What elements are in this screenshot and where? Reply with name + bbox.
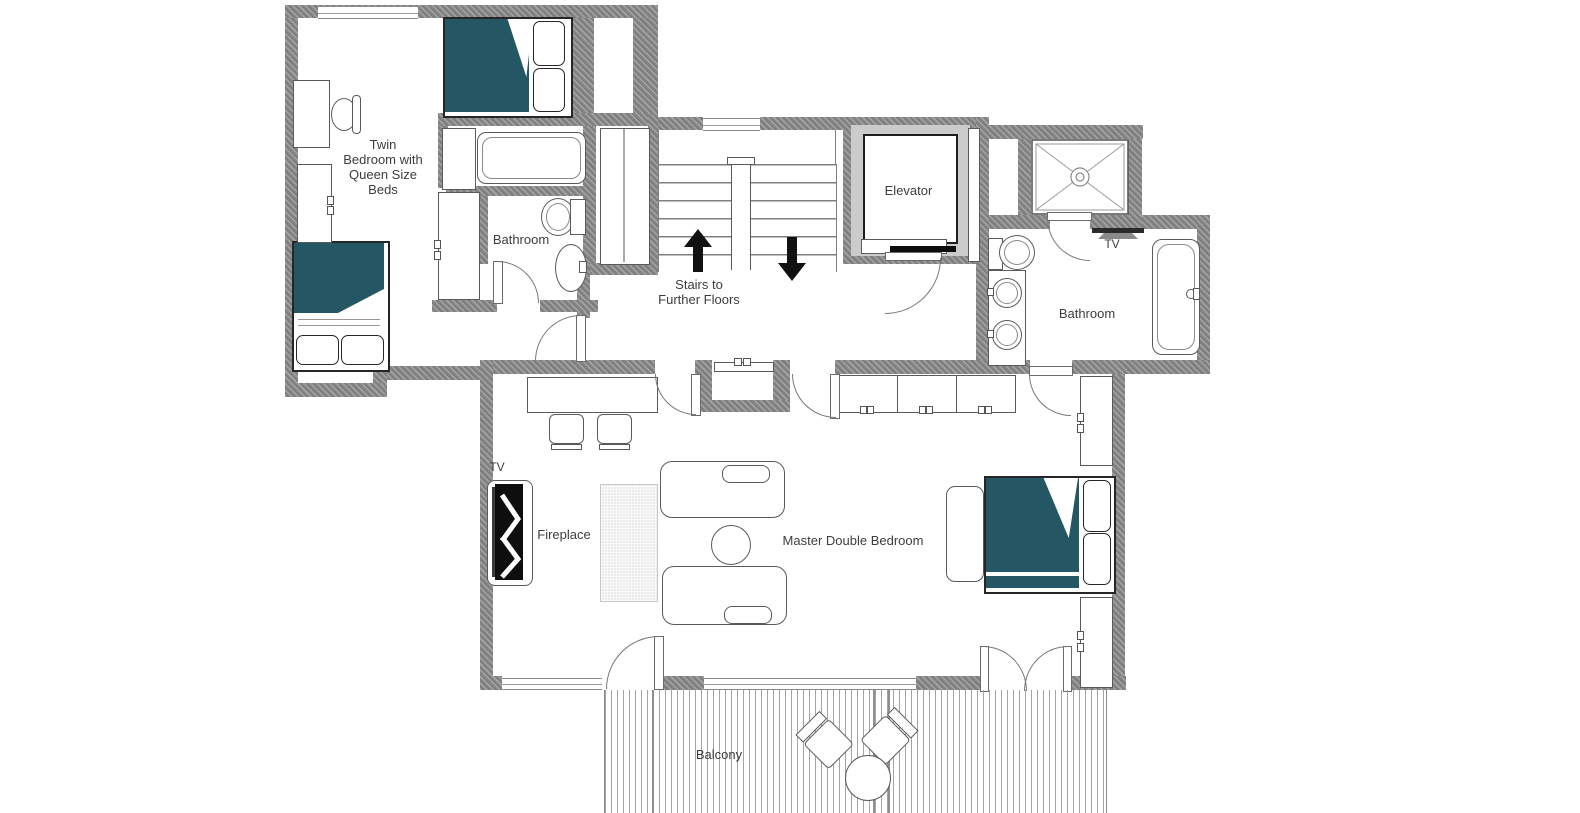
stair-railing [731,160,751,270]
wall-segment [570,18,594,115]
balcony-label: Balcony [679,747,759,760]
wardrobe-handle [978,406,985,414]
tall-cabinet [1080,597,1113,688]
wall-segment [760,117,845,130]
closet-handle [434,240,441,249]
window [704,678,916,690]
hall-closet-divider [623,129,625,262]
window [318,6,418,19]
stairs-label: Stairs to Further Floors [629,277,769,307]
desk-chair-back [352,95,361,134]
wall-segment [480,360,655,374]
sink-tap [987,330,994,338]
door-swing [983,646,1027,691]
tv-icon [1092,228,1144,233]
stair-stringer [658,130,659,164]
chaise-bolster [722,465,770,483]
wall-segment [432,300,497,312]
door-swing [497,261,539,303]
master-bed [984,476,1116,594]
cupboard-handle [734,358,742,366]
sink-bowl [996,324,1018,346]
rug [600,484,658,602]
wall-segment [658,117,703,130]
door-swing [535,315,581,361]
sink-tap [579,261,587,273]
window [502,678,602,690]
tv-label-bathroom: TV [1098,238,1126,251]
master-bedroom-label: Master Double Bedroom [773,533,933,547]
door-swing [1029,374,1071,416]
cabinet-handle [1077,413,1084,422]
wall-segment [989,215,1050,229]
niche-wall [695,400,790,412]
side-table [711,525,751,565]
door-swing [655,374,696,415]
balcony-table [845,755,891,801]
toilet-seat [1004,240,1030,265]
bathtub-inner [482,137,581,179]
hall-cabinet [968,128,980,262]
twin-bed-1 [443,17,573,118]
wall-segment [1072,360,1210,374]
desk [527,377,658,413]
pillow [533,68,565,112]
toilet-seat [546,203,570,231]
desk [293,80,330,148]
pillow [296,335,339,365]
hall-closet [600,128,650,265]
pillow [341,335,384,365]
door-swing [1024,646,1068,691]
fireplace-icon [492,483,526,581]
chaise-bolster [724,606,772,624]
wardrobe-handle [919,406,926,414]
wall-segment [916,676,982,690]
closet-handle [434,251,441,260]
twin-bedroom-label: Twin Bedroom with Queen Size Beds [328,137,438,197]
sink-bowl [996,282,1018,304]
pillow [1083,533,1111,585]
door-swing [792,374,836,418]
dresser-handle [327,196,334,205]
wardrobe-handle [926,406,933,414]
bathroom-upper-label: Bathroom [481,232,561,246]
dresser-handle [327,206,334,215]
window [703,118,760,131]
wall-segment [480,676,502,690]
wall-segment [540,300,598,312]
closet [438,192,480,300]
door-swing [606,636,659,689]
stairs-down-arrow-icon [778,237,806,281]
bathtub-tap-spout [1193,288,1200,300]
cabinet [442,128,476,190]
floor-plan: Elevator Stairs to Further Floors [0,0,1580,813]
stair-railing-cap [727,157,755,165]
tall-cabinet [1080,376,1113,466]
cabinet-handle [1077,643,1084,652]
wall-segment [658,676,704,690]
pillow [533,21,565,66]
fireplace-label: Fireplace [530,527,598,541]
deck-joint [652,690,654,813]
stair-stringer [835,130,836,164]
door-swing [885,258,941,314]
desk-chair-base [551,444,582,450]
desk-chair-base [599,444,630,450]
wall-segment [989,125,1143,139]
cabinet-handle [1077,631,1084,640]
shower [1031,139,1129,215]
wardrobe-handle [860,406,867,414]
desk-chair [597,414,632,444]
wall-segment [1128,139,1142,229]
cabinet-handle [1077,424,1084,433]
toilet-tank [570,199,586,235]
elevator-label: Elevator [863,183,954,197]
stairs-up-arrow-icon [684,229,712,273]
wardrobe-handle [867,406,874,414]
wardrobe-handle [985,406,992,414]
twin-bed-2 [292,241,390,372]
wall-segment [285,383,385,397]
wall-segment [633,18,658,117]
door-swing [1047,218,1090,261]
desk-chair [549,414,584,444]
sink-tap [987,288,994,296]
pillow [1083,480,1111,532]
bed-bench [946,486,984,582]
bathroom-ensuite-label: Bathroom [1047,306,1127,320]
cupboard-handle [743,358,751,366]
tv-label-master: TV [485,461,509,474]
wall-segment [1018,139,1031,217]
